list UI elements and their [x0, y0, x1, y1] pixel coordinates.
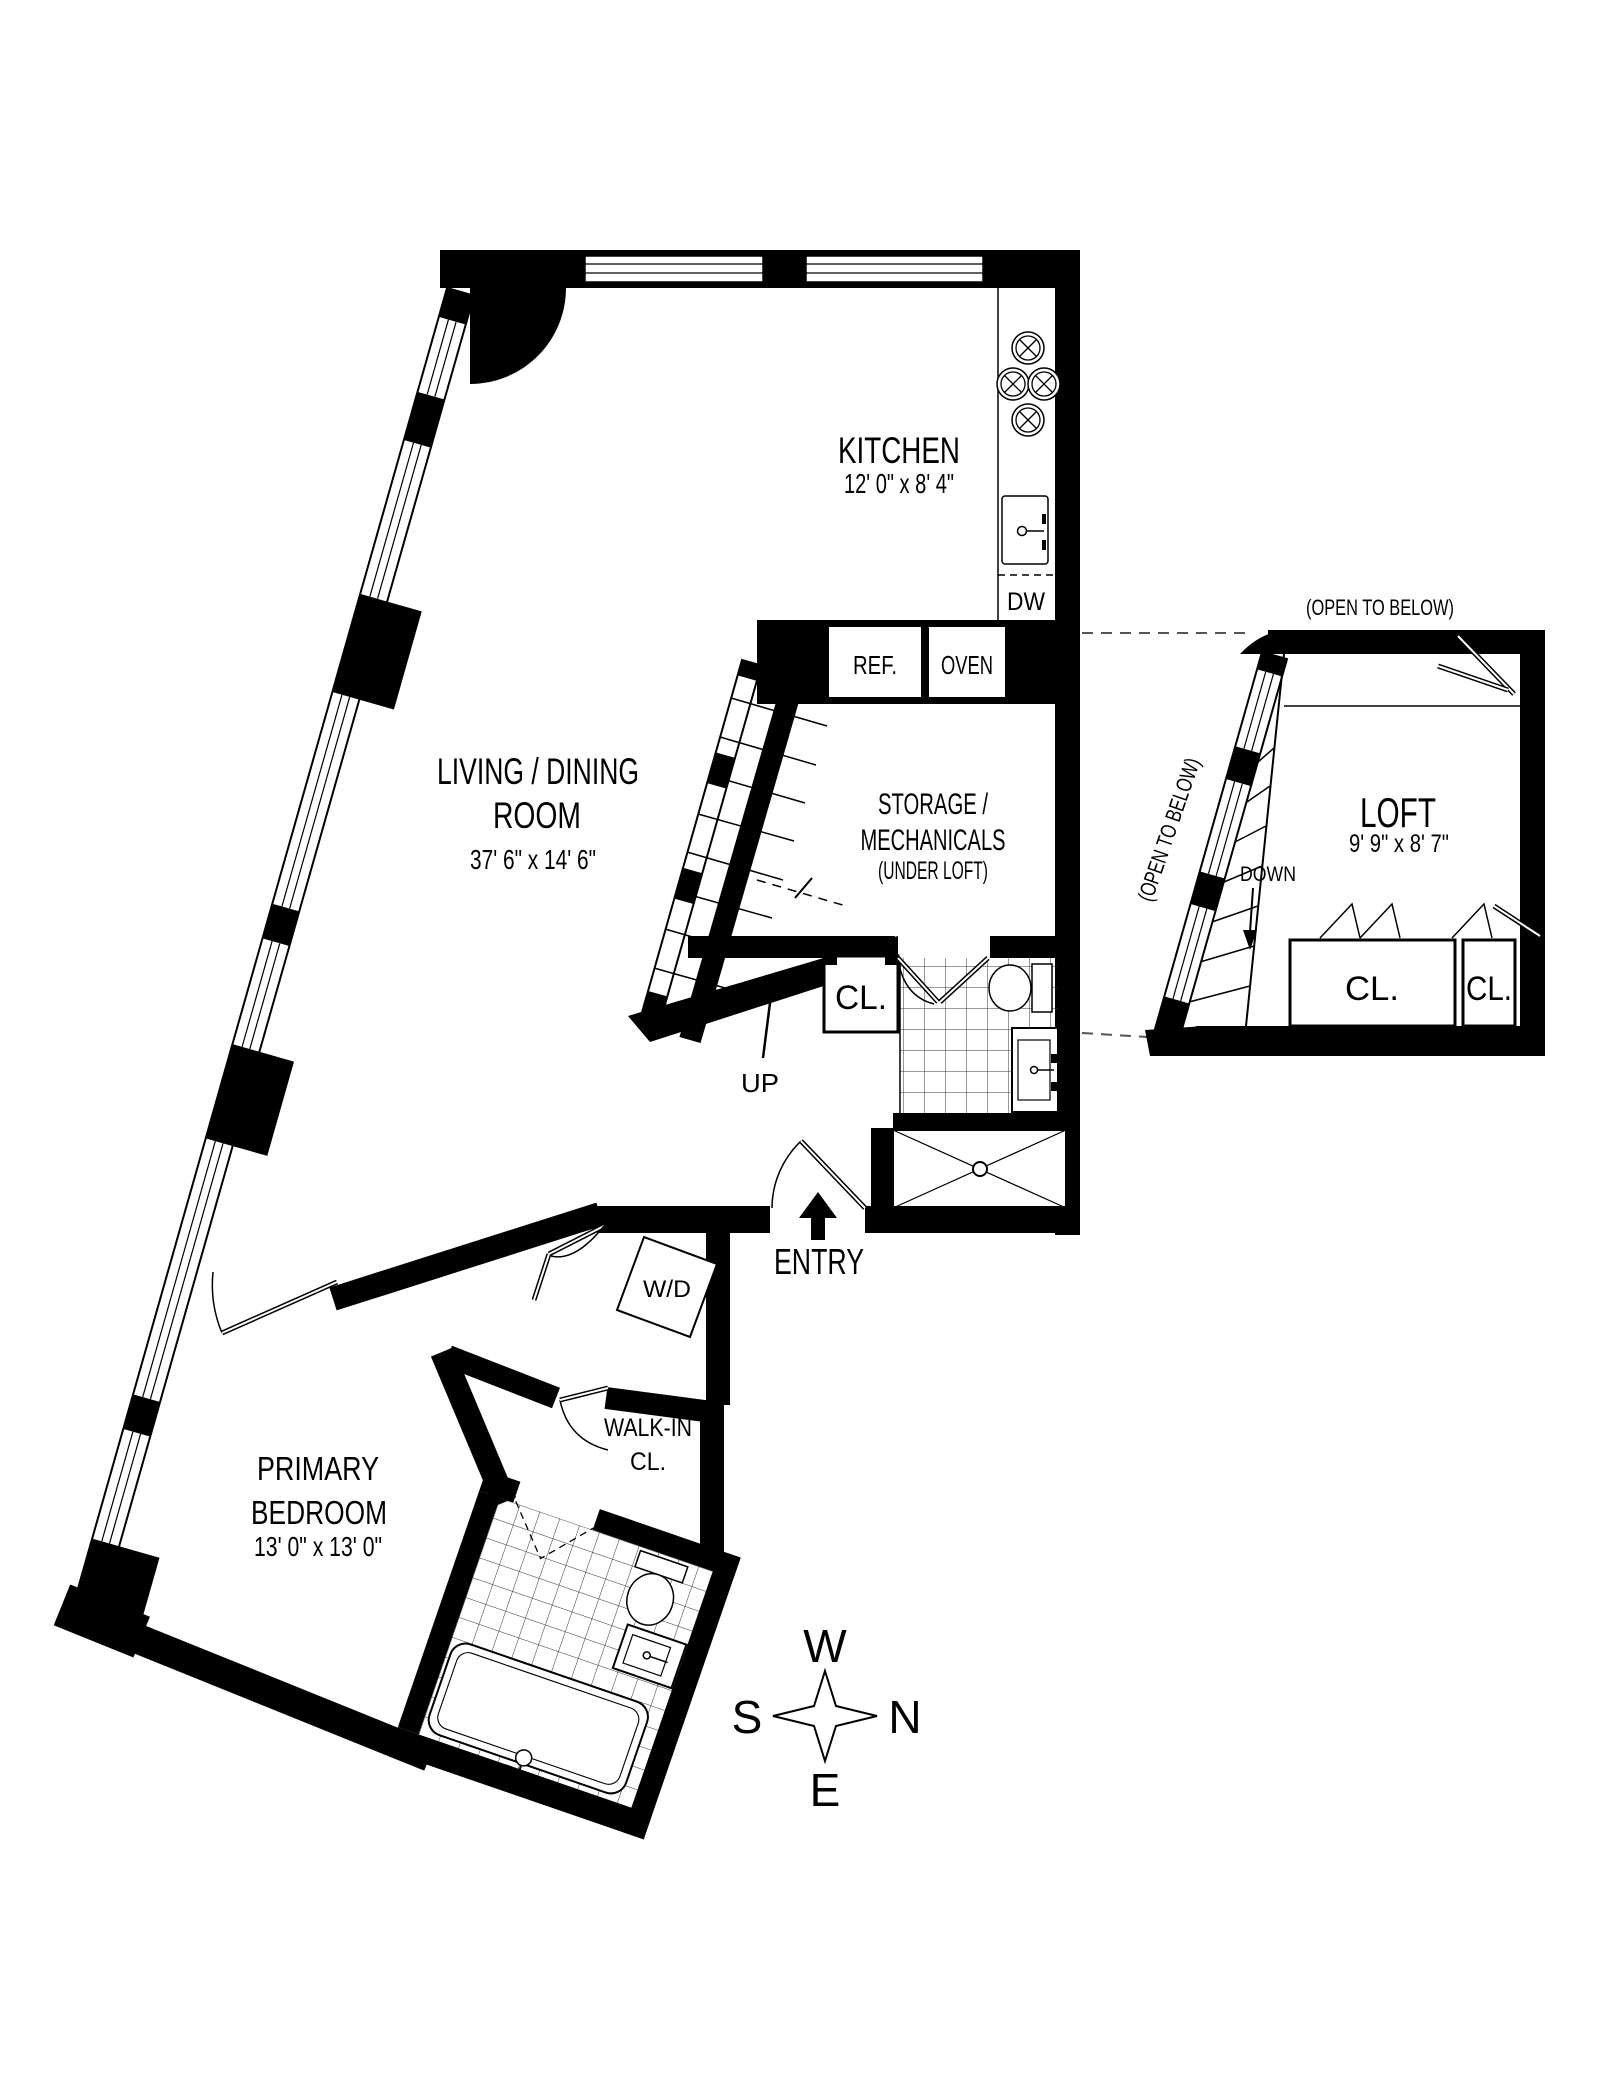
loft-dims: 9' 9" x 8' 7" [1349, 830, 1449, 858]
entry-arrow [799, 1192, 837, 1240]
compass-left: S [732, 1691, 763, 1743]
corner-fillet [470, 288, 566, 384]
bathroom-primary [389, 1470, 740, 1839]
hall-closet-label: CL. [835, 979, 887, 1017]
bedroom-label-2: BEDROOM [251, 1494, 387, 1531]
compass: W S N E [732, 1620, 922, 1816]
wd-label: W/D [643, 1276, 691, 1303]
loft-label: LOFT [1360, 789, 1436, 836]
wd-right-wall [706, 1233, 730, 1405]
living-label-1: LIVING / DINING [437, 751, 639, 792]
bedroom-door [212, 1272, 337, 1333]
window-mullions [75, 288, 515, 1619]
loft-open-side-label: (OPEN TO BELOW) [1133, 755, 1205, 905]
floor-plan-page: REF. OVEN DW KITCHEN 12' 0" x 8' 4" LIVI… [0, 0, 1600, 2070]
living-dims: 37' 6" x 14' 6" [470, 844, 596, 875]
loft-closet-a-label: CL. [1345, 970, 1399, 1008]
loft-bottom-wall [1196, 1026, 1545, 1056]
oven-label: OVEN [941, 650, 993, 680]
entry-label: ENTRY [774, 1241, 864, 1282]
bathroom-vanity [1012, 1028, 1058, 1112]
storage-label-1: STORAGE / [878, 788, 988, 821]
cooktop-burners [997, 332, 1060, 436]
up-label: UP [741, 1068, 779, 1098]
living-label-2: ROOM [493, 795, 581, 836]
ref-label: REF. [853, 650, 897, 680]
bedroom-dims: 13' 0" x 13' 0" [254, 1531, 382, 1562]
kitchen-sink [1002, 496, 1048, 564]
compass-right: N [888, 1691, 921, 1743]
stair-break-line [757, 880, 846, 906]
dw-label: DW [1007, 588, 1045, 616]
loft-inset: (OPEN TO BELOW) DOWN [1133, 595, 1545, 1056]
loft-closets: CL. CL. [1290, 904, 1540, 1026]
bedroom-bottom-wall [54, 1584, 440, 1774]
storage-note: (UNDER LOFT) [878, 857, 988, 885]
hall-closet: CL. [824, 954, 898, 1032]
toilet [989, 964, 1052, 1012]
compass-top: W [803, 1620, 847, 1672]
floor-plan-drawing: REF. OVEN DW KITCHEN 12' 0" x 8' 4" LIVI… [0, 0, 1600, 2070]
bedroom-label-1: PRIMARY [257, 1450, 379, 1487]
walkin-right-wall [700, 1405, 724, 1567]
walkin-top-wall [606, 1398, 712, 1412]
walkin-label-1: WALK-IN [604, 1414, 692, 1442]
loft-top-wall [1268, 630, 1545, 654]
compass-bottom: E [810, 1764, 841, 1816]
kitchen-counter: DW [997, 288, 1060, 622]
shower [871, 1128, 1066, 1210]
kitchen-dims: 12' 0" x 8' 4" [844, 468, 954, 499]
loft-corner-fillet [1240, 631, 1286, 654]
walkin-label-2: CL. [630, 1448, 666, 1476]
loft-open-top-label: (OPEN TO BELOW) [1306, 595, 1454, 620]
storage-label-2: MECHANICALS [861, 824, 1006, 857]
laundry-closet: W/D [534, 1226, 717, 1337]
left-window-wall [75, 288, 515, 1619]
bathroom-upper [893, 958, 1066, 1133]
kitchen-label: KITCHEN [838, 430, 960, 471]
loft-closet-b-label: CL. [1466, 970, 1512, 1008]
kitchen-appliance-wall: REF. OVEN [757, 620, 1080, 704]
loft-right-wall [1520, 630, 1545, 1056]
bath-top-wall-right [990, 936, 1080, 958]
top-wall [440, 250, 1080, 384]
down-label: DOWN [1240, 863, 1296, 886]
